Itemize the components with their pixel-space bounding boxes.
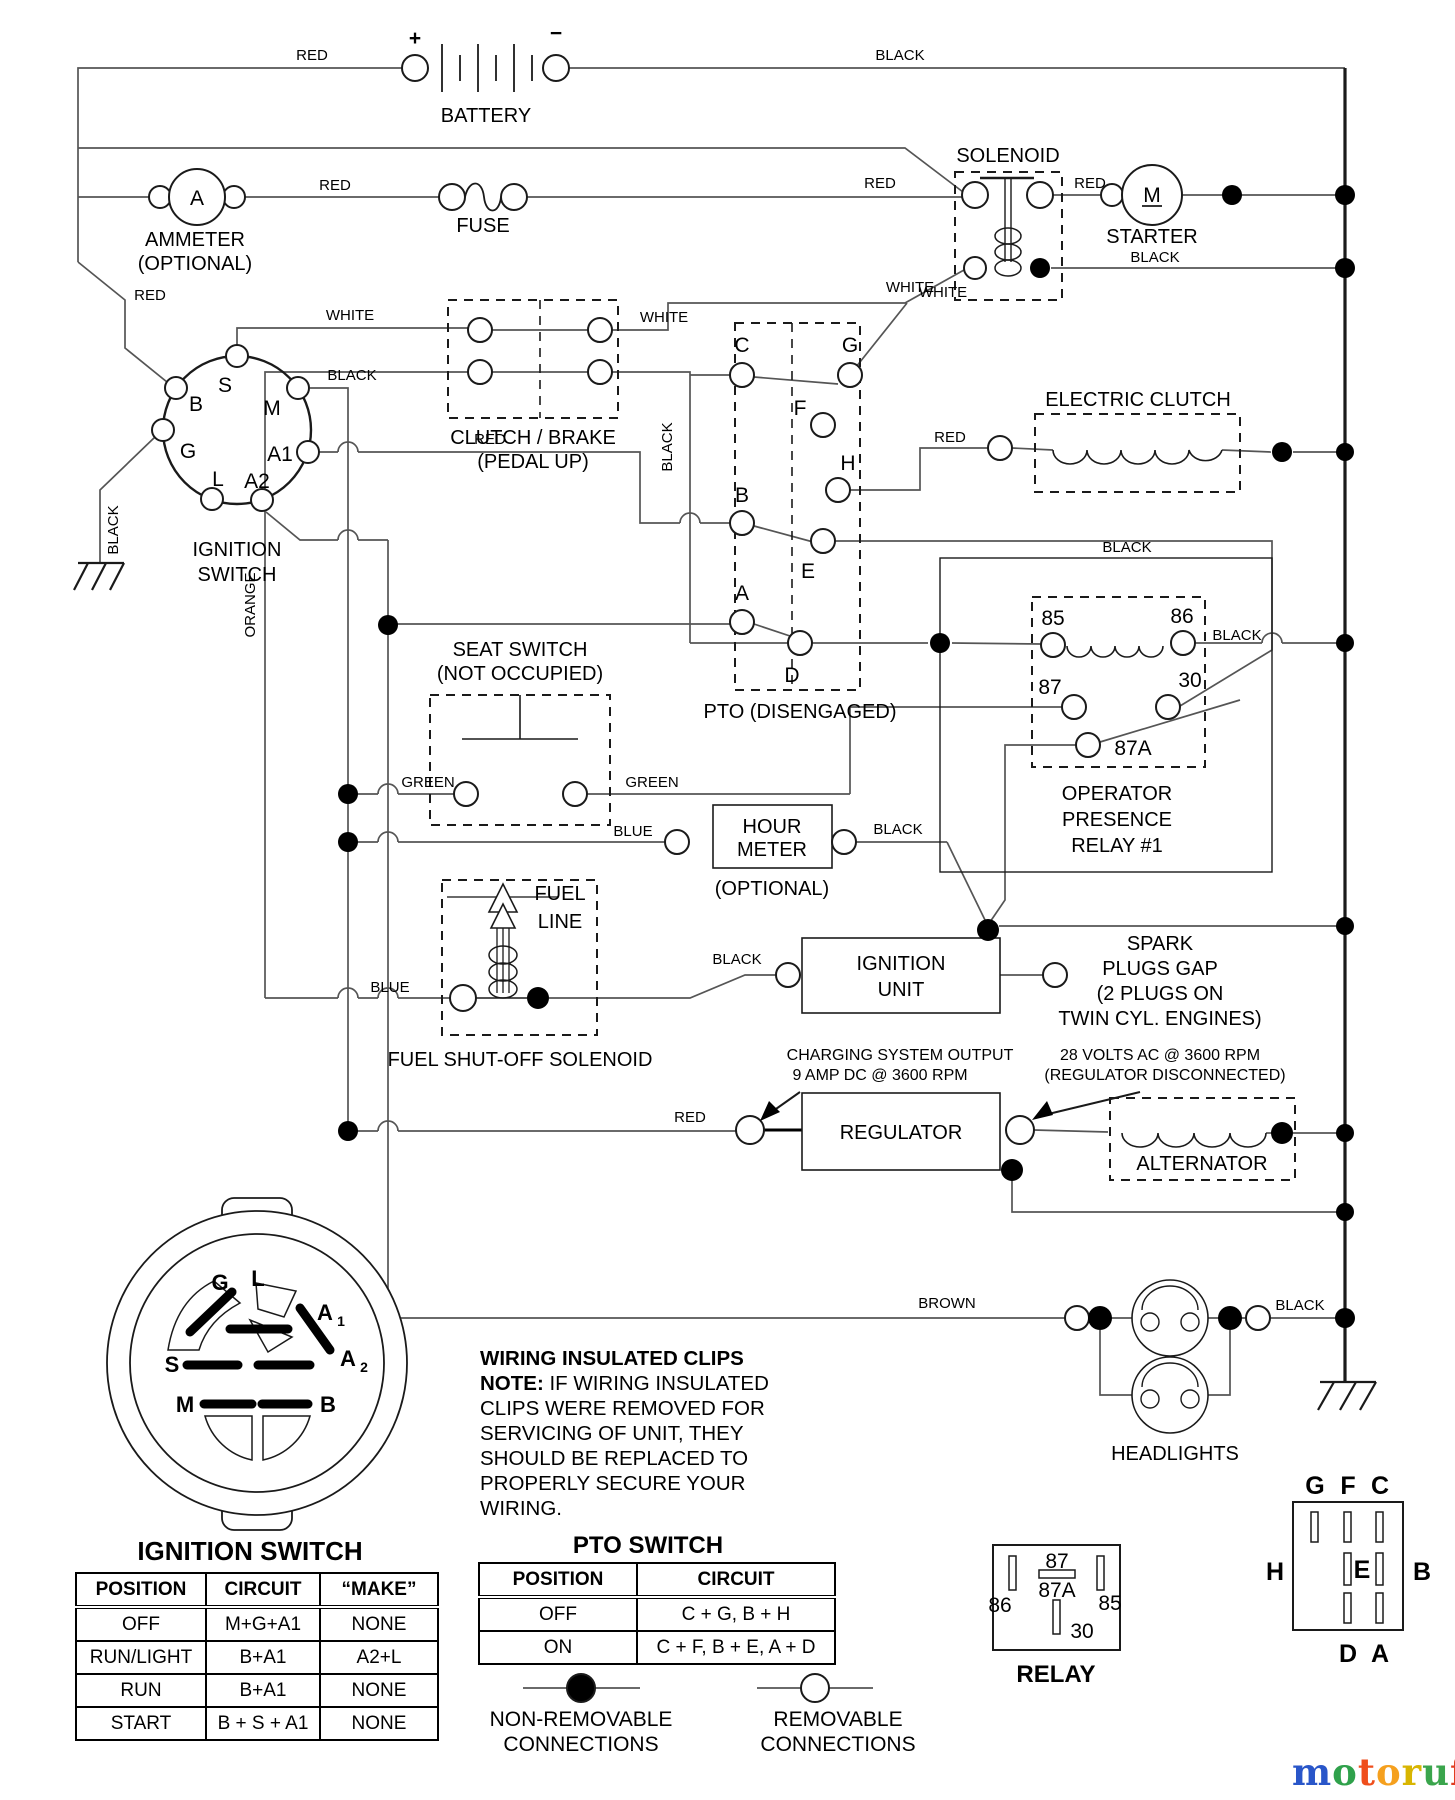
wire-label-black: BLACK	[1130, 249, 1179, 266]
seat-switch-label2: (NOT OCCUPIED)	[437, 663, 603, 685]
wiring-diagram-page: + − BATTERY RED BLACK A AMMETER (OPTIONA…	[0, 0, 1455, 1800]
cell: C + F, B + E, A + D	[637, 1631, 835, 1664]
wire-label-black: BLACK	[1102, 539, 1151, 556]
ac-note-line1: 28 VOLTS AC @ 3600 RPM	[1060, 1047, 1260, 1064]
legend-nonremovable-1: NON-REMOVABLE	[490, 1708, 673, 1731]
relay1-terminal-85: 85	[1041, 607, 1064, 630]
connector-pin-s: S	[165, 1352, 180, 1377]
hour-meter-label2: METER	[737, 839, 807, 861]
wire-label-white: WHITE	[919, 284, 967, 301]
col-circuit: CIRCUIT	[206, 1573, 320, 1607]
wire-label-black: BLACK	[875, 47, 924, 64]
battery-plus-sign: +	[409, 27, 421, 50]
wire-label-black-vertical: BLACK	[659, 422, 676, 471]
schematic-canvas: + − BATTERY RED BLACK A AMMETER (OPTIONA…	[0, 0, 1455, 1800]
ignition-terminal-b: B	[189, 393, 203, 416]
regulator-label: REGULATOR	[840, 1122, 963, 1144]
wire-label-black: BLACK	[1275, 1297, 1324, 1314]
wires	[78, 68, 1345, 1395]
wire-label-brown: BROWN	[918, 1295, 976, 1312]
ignition-terminal-s: S	[218, 374, 232, 397]
ignition-unit-label2: UNIT	[878, 979, 925, 1001]
relay1-terminal-87a: 87A	[1114, 737, 1151, 760]
logo-letter: t	[1358, 1750, 1376, 1794]
connector-pin-a1: A	[317, 1300, 333, 1325]
electric-clutch-label: ELECTRIC CLUTCH	[1045, 389, 1231, 411]
starter-label: STARTER	[1106, 226, 1198, 248]
wire-label-red: RED	[674, 1109, 706, 1126]
ignition-terminal-a2: A2	[244, 470, 270, 493]
relay-pin-30: 30	[1070, 1620, 1093, 1643]
headlights-symbol	[1065, 1280, 1270, 1433]
solenoid-label: SOLENOID	[956, 145, 1059, 167]
wire-label-black: BLACK	[712, 951, 761, 968]
table-row: RUNB+A1NONE	[76, 1674, 438, 1707]
fuse-symbol	[439, 184, 527, 211]
pto-switch-heading: PTO SWITCH	[573, 1532, 723, 1559]
pto-terminal-h: H	[840, 452, 855, 475]
wiring-note-line5: PROPERLY SECURE YOUR WIRING.	[480, 1471, 825, 1521]
clutch-brake-label2: (PEDAL UP)	[477, 451, 589, 473]
cell: RUN/LIGHT	[76, 1641, 206, 1674]
solenoid-symbol	[955, 172, 1062, 300]
socket-pin-b: B	[1413, 1558, 1431, 1586]
cell: RUN	[76, 1674, 206, 1707]
electric-clutch-symbol	[988, 414, 1240, 492]
hour-meter-label1: HOUR	[743, 816, 802, 838]
relay1-terminal-30: 30	[1178, 669, 1201, 692]
pto-terminal-e: E	[801, 560, 815, 583]
ammeter-symbol-letter: A	[190, 187, 204, 210]
socket-view-symbol	[1293, 1502, 1403, 1630]
socket-pin-h: H	[1266, 1558, 1284, 1586]
headlights-label: HEADLIGHTS	[1111, 1443, 1239, 1465]
seat-switch-label1: SEAT SWITCH	[453, 639, 588, 661]
wire-label-white: WHITE	[640, 309, 688, 326]
spark-label2: PLUGS GAP	[1102, 958, 1218, 980]
connector-pin-a1-sub: 1	[337, 1313, 345, 1329]
wire-label-red: RED	[134, 287, 166, 304]
logo-letter: o	[1376, 1750, 1402, 1794]
socket-pin-d: D	[1339, 1640, 1357, 1668]
wiring-note-bold: NOTE:	[480, 1372, 544, 1395]
cell: OFF	[479, 1597, 637, 1631]
cell: B+A1	[206, 1674, 320, 1707]
wire-label-red: RED	[296, 47, 328, 64]
wire-label-blue: BLUE	[370, 979, 409, 996]
table-row: OFFC + G, B + H	[479, 1597, 835, 1631]
pto-label: PTO (DISENGAGED)	[704, 701, 897, 723]
wire-label-black: BLACK	[1212, 627, 1261, 644]
ignition-unit-label1: IGNITION	[857, 953, 946, 975]
wiring-note-line4: SHOULD BE REPLACED TO	[480, 1446, 825, 1471]
ignition-terminal-l: L	[212, 468, 224, 491]
connector-pin-l: L	[251, 1266, 264, 1291]
socket-pin-c: C	[1371, 1472, 1389, 1500]
cell: START	[76, 1707, 206, 1740]
table-row: OFFM+G+A1NONE	[76, 1607, 438, 1641]
col-position: POSITION	[479, 1563, 637, 1597]
fuse-label: FUSE	[456, 215, 509, 237]
pto-switch-symbol	[730, 323, 862, 690]
wiring-note-line3: SERVICING OF UNIT, THEY	[480, 1421, 825, 1446]
wire-label-orange-vertical: ORANGE	[242, 572, 259, 637]
cell: C + G, B + H	[637, 1597, 835, 1631]
fuel-label2: LINE	[538, 911, 582, 933]
table-row: RUN/LIGHTB+A1A2+L	[76, 1641, 438, 1674]
wire-label-black: BLACK	[873, 821, 922, 838]
connector-pin-g: G	[211, 1270, 228, 1295]
wire-label-red: RED	[319, 177, 351, 194]
relay-module-label: RELAY	[1016, 1661, 1095, 1688]
relay1-label3: RELAY #1	[1071, 835, 1163, 857]
starter-symbol	[1101, 165, 1182, 225]
logo-letter: r	[1402, 1750, 1423, 1794]
starter-symbol-letter: M	[1143, 184, 1161, 207]
wiring-note: WIRING INSULATED CLIPS NOTE: IF WIRING I…	[480, 1346, 825, 1521]
fuel-label1: FUEL	[534, 883, 585, 905]
col-make: “MAKE”	[320, 1573, 438, 1607]
charging-note-line2: 9 AMP DC @ 3600 RPM	[792, 1067, 967, 1084]
legend-removable-2: CONNECTIONS	[760, 1733, 915, 1756]
legend-symbols	[523, 1674, 873, 1702]
wire-label-green: GREEN	[401, 774, 454, 791]
socket-pin-f: F	[1340, 1472, 1355, 1500]
legend-nonremovable-2: CONNECTIONS	[503, 1733, 658, 1756]
logo-letter: m	[1292, 1750, 1332, 1794]
wiring-note-heading: WIRING INSULATED CLIPS	[480, 1346, 825, 1371]
alternator-label: ALTERNATOR	[1136, 1153, 1267, 1175]
pto-terminal-b: B	[735, 484, 749, 507]
relay-pin-87: 87	[1045, 1550, 1068, 1573]
ammeter-label: AMMETER	[145, 229, 245, 251]
cell: B+A1	[206, 1641, 320, 1674]
motoruf-logo: motoruf.de	[1292, 1750, 1455, 1794]
table-header-row: POSITION CIRCUIT “MAKE”	[76, 1573, 438, 1607]
ignition-switch-symbol	[152, 345, 319, 511]
battery-label: BATTERY	[441, 105, 531, 127]
cell: M+G+A1	[206, 1607, 320, 1641]
connector-pin-m: M	[176, 1392, 194, 1417]
ignition-terminal-a1: A1	[267, 443, 293, 466]
cell: NONE	[320, 1707, 438, 1740]
cell: OFF	[76, 1607, 206, 1641]
battery-minus-sign: −	[550, 22, 562, 45]
pto-terminal-g: G	[842, 334, 858, 357]
col-position: POSITION	[76, 1573, 206, 1607]
ignition-switch-table: POSITION CIRCUIT “MAKE” OFFM+G+A1NONE RU…	[75, 1572, 439, 1741]
wiring-note-line1: NOTE: IF WIRING INSULATED	[480, 1371, 825, 1396]
relay1-terminal-86: 86	[1170, 605, 1193, 628]
ignition-switch-heading: IGNITION SWITCH	[137, 1536, 362, 1566]
connector-pin-b: B	[320, 1392, 336, 1417]
ac-note-line2: (REGULATOR DISCONNECTED)	[1044, 1067, 1285, 1084]
wiring-note-line2: CLIPS WERE REMOVED FOR	[480, 1396, 825, 1421]
socket-pin-e: E	[1354, 1556, 1371, 1584]
pto-terminal-f: F	[794, 397, 807, 420]
battery-symbol	[402, 44, 569, 92]
wire-label-red: RED	[474, 431, 506, 448]
hour-meter-optional: (OPTIONAL)	[715, 878, 829, 900]
cell: NONE	[320, 1674, 438, 1707]
relay1-terminal-87: 87	[1038, 676, 1061, 699]
logo-letter: u	[1422, 1750, 1450, 1794]
socket-pin-a: A	[1371, 1640, 1389, 1668]
connector-pin-a2-sub: 2	[360, 1359, 368, 1375]
wire-label-black-vertical: BLACK	[105, 505, 122, 554]
wire-label-black: BLACK	[327, 367, 376, 384]
wiring-note-rest: IF WIRING INSULATED	[544, 1372, 769, 1395]
right-ground-symbol	[1318, 1382, 1376, 1410]
relay1-label2: PRESENCE	[1062, 809, 1172, 831]
cell: NONE	[320, 1607, 438, 1641]
pto-switch-table: POSITION CIRCUIT OFFC + G, B + H ONC + F…	[478, 1562, 836, 1665]
relay-pin-87a: 87A	[1038, 1579, 1075, 1602]
clutch-brake-symbol	[448, 300, 618, 418]
logo-letter: o	[1332, 1750, 1358, 1794]
wire-label-red: RED	[934, 429, 966, 446]
table-row: ONC + F, B + E, A + D	[479, 1631, 835, 1664]
ignition-terminal-m: M	[263, 397, 281, 420]
wire-label-green: GREEN	[625, 774, 678, 791]
fuel-solenoid-caption: FUEL SHUT-OFF SOLENOID	[388, 1049, 653, 1071]
cell: ON	[479, 1631, 637, 1664]
ignition-switch-label2: SWITCH	[198, 564, 277, 586]
table-header-row: POSITION CIRCUIT	[479, 1563, 835, 1597]
relay-pin-86: 86	[988, 1594, 1011, 1617]
logo-letter: f	[1450, 1750, 1455, 1794]
cell: A2+L	[320, 1641, 438, 1674]
charging-note-line1: CHARGING SYSTEM OUTPUT	[787, 1047, 1014, 1064]
spark-label4: TWIN CYL. ENGINES)	[1058, 1008, 1261, 1030]
legend-removable-1: REMOVABLE	[773, 1708, 902, 1731]
wire-label-red: RED	[1074, 175, 1106, 192]
wire-label-red: RED	[864, 175, 896, 192]
ignition-terminal-g: G	[180, 440, 196, 463]
table-row: STARTB + S + A1NONE	[76, 1707, 438, 1740]
seat-switch-symbol	[430, 695, 610, 825]
connector-pin-a2: A	[340, 1346, 356, 1371]
wire-label-white: WHITE	[326, 307, 374, 324]
pto-terminal-d: D	[784, 664, 799, 687]
relay-pin-85: 85	[1098, 1592, 1121, 1615]
col-circuit: CIRCUIT	[637, 1563, 835, 1597]
spark-label3: (2 PLUGS ON	[1097, 983, 1224, 1005]
socket-pin-g: G	[1305, 1472, 1324, 1500]
relay1-label1: OPERATOR	[1062, 783, 1172, 805]
left-ground-symbol	[74, 563, 124, 590]
spark-label1: SPARK	[1127, 933, 1194, 955]
ammeter-optional-label: (OPTIONAL)	[138, 253, 252, 275]
ignition-switch-label1: IGNITION	[193, 539, 282, 561]
cell: B + S + A1	[206, 1707, 320, 1740]
wire-label-blue: BLUE	[613, 823, 652, 840]
pto-terminal-a: A	[735, 582, 749, 605]
pto-terminal-c: C	[734, 334, 749, 357]
